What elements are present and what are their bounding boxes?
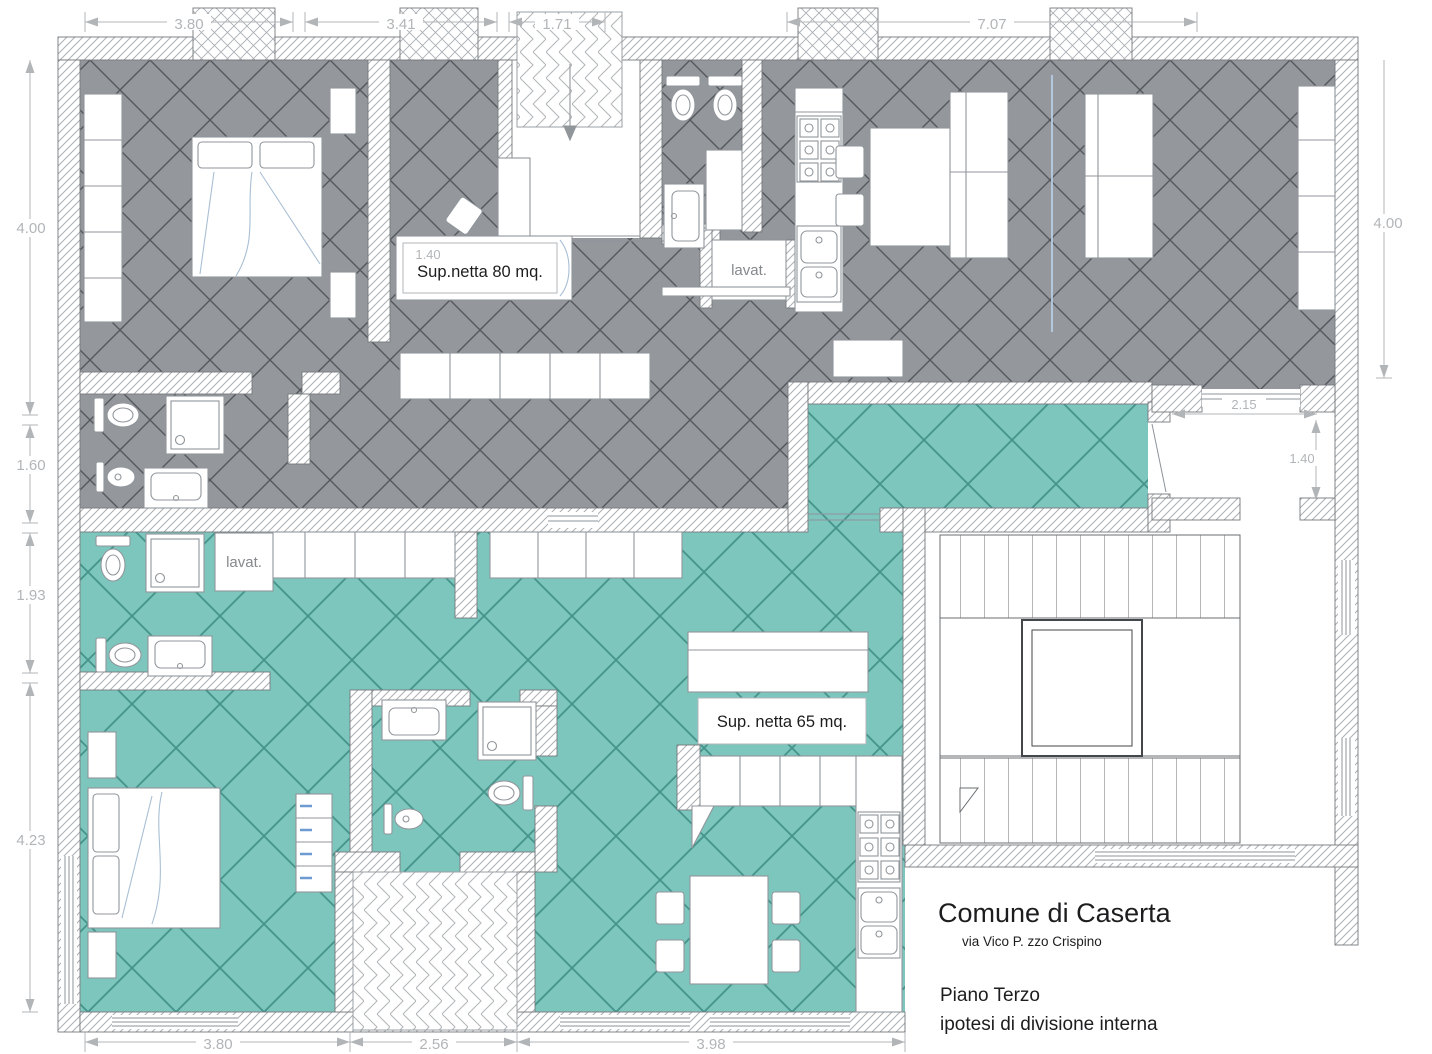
wall-bath3-east-b (535, 806, 557, 872)
wall-corridor-west (788, 382, 808, 532)
wall-terrace-west (335, 872, 353, 1012)
dim-top-2: 3.41 (386, 16, 415, 33)
bath-cabinet (706, 150, 742, 230)
wall-bath1-a (80, 372, 252, 394)
wall-corridor-north (808, 382, 1152, 404)
chair (772, 940, 800, 972)
dining-table-teal (690, 876, 768, 984)
title-floor: Piano Terzo (940, 985, 1040, 1006)
title-address: via Vico P. zzo Crispino (962, 934, 1102, 949)
wardrobe-teal-b (490, 532, 682, 578)
dim-bottom-3: 3.98 (696, 1036, 725, 1053)
title-municipality: Comune di Caserta (938, 898, 1172, 928)
pier-4 (1050, 8, 1132, 60)
wall-balcony-south-a (1152, 498, 1240, 520)
wall-kitchen-fragment (677, 745, 700, 810)
chair (656, 940, 684, 972)
wardrobe-living (1298, 86, 1335, 310)
wall-bath1-c (288, 394, 310, 464)
dim-top-1: 3.80 (174, 16, 203, 33)
area-label-apartment2: Sup. netta 65 mq. (717, 713, 847, 731)
dim-right-1: 4.00 (1373, 215, 1402, 232)
nightstand-1b (330, 272, 356, 318)
stove-teal (858, 812, 900, 882)
sideboard (833, 340, 903, 377)
wall-terrace-east (517, 872, 535, 1012)
floorplan-drawing: 3.80 3.41 1.71 7.07 4.00 1.60 1.93 4.23 … (0, 0, 1432, 1054)
stair-flight-upper (940, 535, 1240, 618)
dim-balcony-width: 2.15 (1231, 397, 1256, 412)
dim-bottom-2: 2.56 (419, 1036, 448, 1053)
elevator-cab (1032, 630, 1132, 746)
laundry-label-1: lavat. (731, 262, 767, 279)
wall-wardrobe-divider (455, 532, 477, 618)
dim-left-3: 1.93 (16, 587, 45, 604)
wall-terrace-north-b (460, 852, 535, 872)
dim-bottom-1: 3.80 (203, 1036, 232, 1053)
stairwell (940, 535, 1240, 843)
wall-stair-west (903, 508, 925, 845)
wall-divider-apartments (80, 508, 790, 532)
shower-icon (166, 396, 224, 454)
sink-icon (148, 636, 212, 676)
area-label-apartment1: Sup.netta 80 mq. (417, 263, 543, 281)
kitchen-shelf (662, 287, 790, 296)
nightstand-3b (88, 932, 116, 978)
wall-bath3-east-a (535, 706, 557, 756)
title-subtitle: ipotesi di divisione interna (940, 1014, 1158, 1035)
wall-balcony-south-b (1300, 498, 1335, 520)
sofa-2 (1085, 94, 1153, 258)
wall-bath1-b (302, 372, 340, 394)
sink-icon (144, 468, 208, 508)
pier-3 (798, 8, 878, 60)
sofa-1 (950, 92, 1008, 258)
stair-flight-lower (940, 758, 1240, 843)
wardrobe-bedroom1 (84, 94, 122, 322)
double-bed-3 (88, 788, 220, 928)
title-block: Comune di Caserta via Vico P. zzo Crispi… (938, 898, 1172, 1035)
drawer-unit (296, 794, 332, 892)
wardrobe-teal-a (255, 532, 455, 578)
dim-top-3: 1.71 (542, 16, 571, 33)
dim-left-1: 4.00 (16, 220, 45, 237)
dim-top-4: 7.07 (977, 16, 1006, 33)
nightstand-3a (88, 732, 116, 778)
dim-left-2: 1.60 (16, 457, 45, 474)
nightstand-1a (330, 88, 356, 134)
chair (656, 892, 684, 924)
sofa-row-gray (400, 353, 650, 399)
stove-gray (797, 116, 841, 182)
sofa-teal (688, 632, 868, 692)
wall-balcony-north-b (1300, 385, 1335, 412)
sink-icon (382, 700, 446, 740)
dining-table-gray (870, 128, 952, 246)
wall-bedroom1-bedroom2 (368, 60, 390, 342)
chair (772, 892, 800, 924)
double-bed-1 (192, 137, 322, 277)
wall-terrace-north-a (335, 852, 400, 872)
kitchen-sink-gray (797, 226, 841, 302)
shower-icon (478, 702, 536, 760)
laundry-label-2: lavat. (226, 554, 262, 571)
wall-hall-right (640, 60, 662, 238)
terrace-herringbone (353, 872, 517, 1030)
chair (836, 194, 864, 226)
dim-left-4: 4.23 (16, 832, 45, 849)
shower-icon (146, 534, 204, 592)
faint-dim-label: 1.40 (415, 247, 440, 262)
dim-balcony-depth: 1.40 (1289, 451, 1314, 466)
kitchen-sink-teal (858, 888, 900, 958)
wall-bath2-right (742, 60, 762, 232)
wall-balcony-north-a (1152, 385, 1202, 412)
chair (836, 146, 864, 178)
sink-icon (664, 184, 704, 248)
floorplan-page: 3.80 3.41 1.71 7.07 4.00 1.60 1.93 4.23 … (0, 0, 1432, 1054)
